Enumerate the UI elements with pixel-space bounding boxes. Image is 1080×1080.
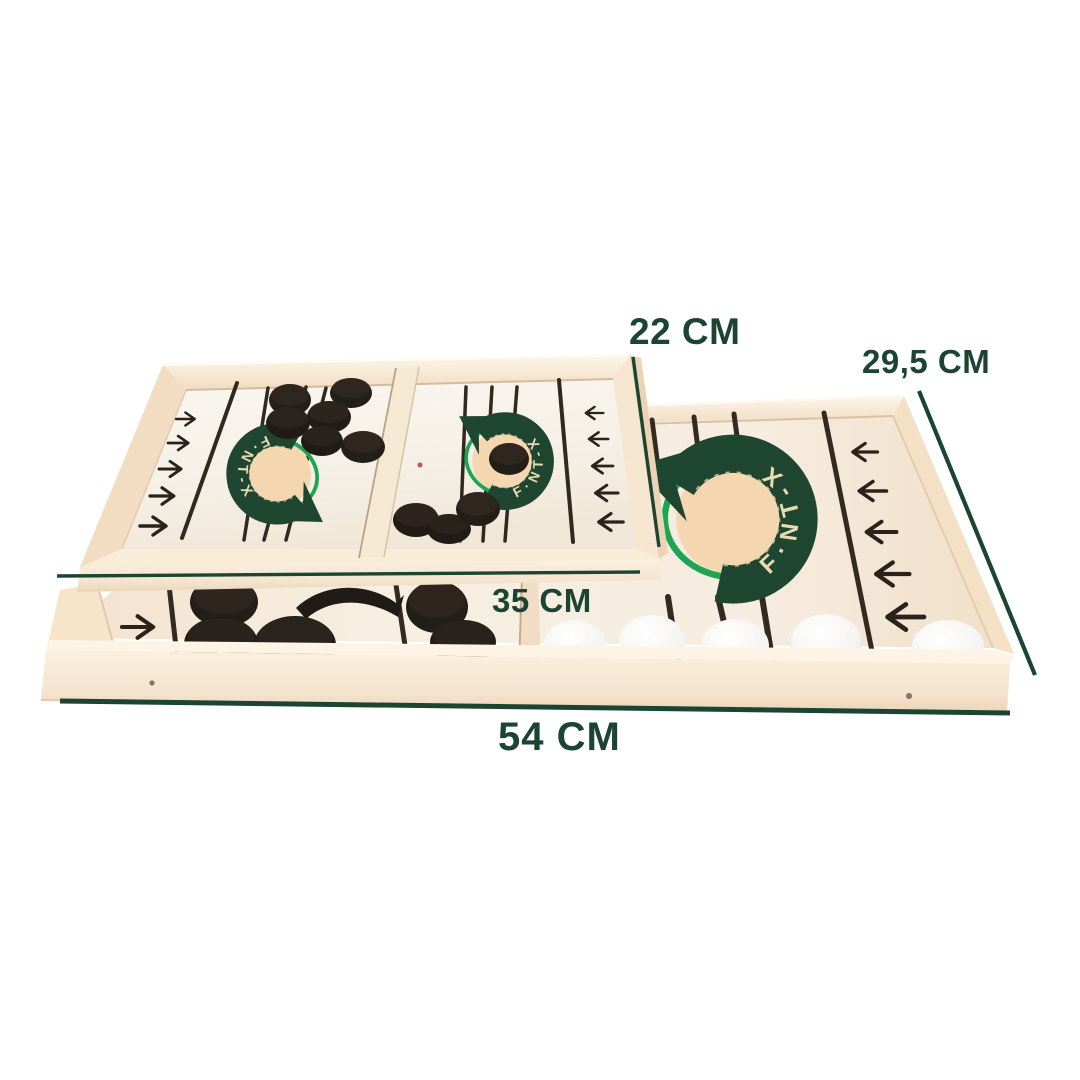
small-board: F·NT-X F·NT-X — [77, 355, 668, 592]
black-puck — [341, 431, 385, 463]
dimension-label-35cm: 35 CM — [492, 584, 592, 617]
screw — [906, 693, 912, 699]
dimension-label-22cm: 22 CM — [629, 313, 740, 350]
dimension-label-54cm: 54 CM — [498, 717, 621, 757]
product-photo-svg: F·NT-X — [0, 0, 1080, 1080]
black-puck — [456, 492, 500, 526]
screw — [149, 680, 154, 685]
dimension-label-29cm: 29,5 CM — [862, 345, 990, 378]
red-mark — [418, 463, 423, 468]
black-puck — [301, 426, 343, 456]
black-puck — [489, 443, 529, 475]
product-dimension-image: F·NT-X — [0, 0, 1080, 1080]
